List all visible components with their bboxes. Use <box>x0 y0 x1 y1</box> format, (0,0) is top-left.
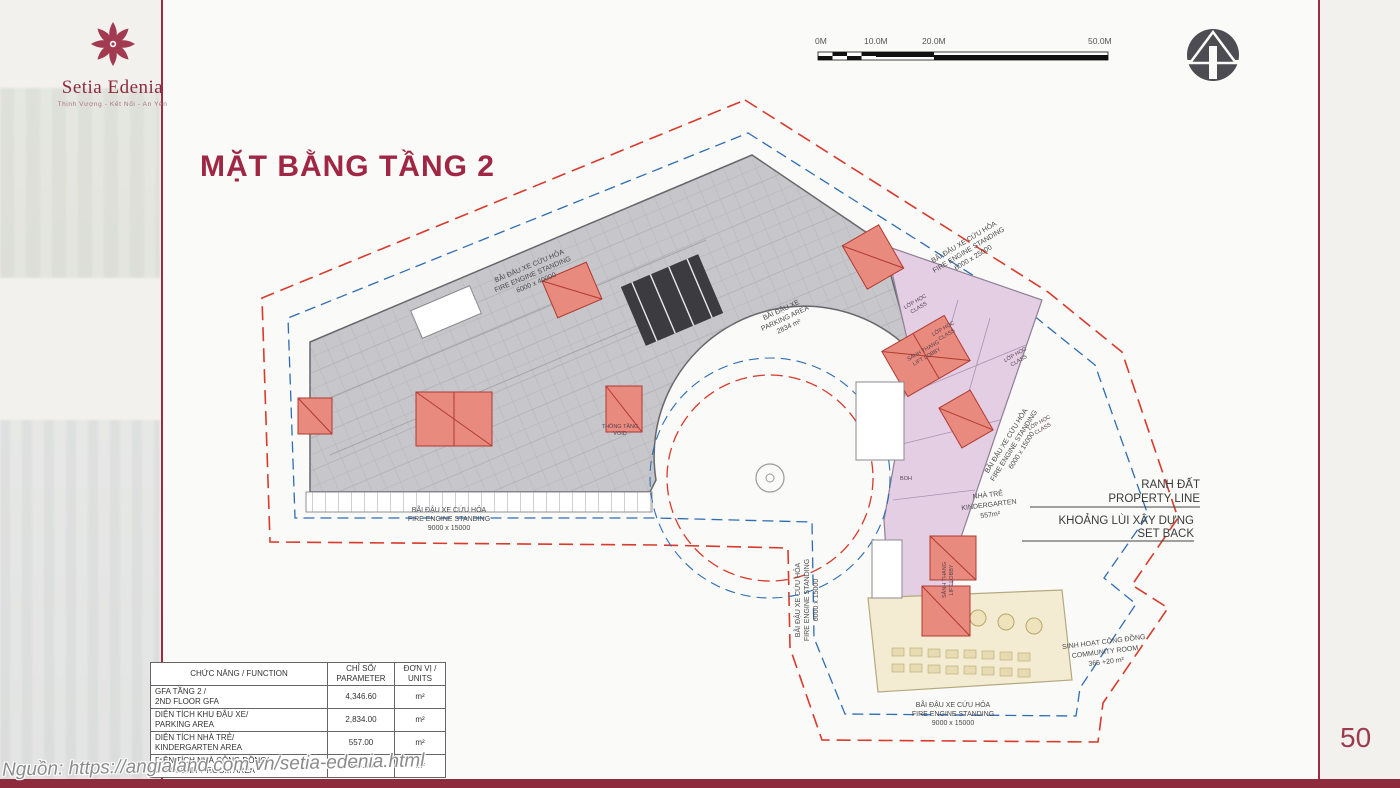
svg-text:FIRE ENGINE STANDING: FIRE ENGINE STANDING <box>408 516 490 523</box>
legend-setback-en: SET BACK <box>1137 528 1194 540</box>
legend-property-vi: RANH ĐẤT <box>1141 478 1200 491</box>
svg-text:LIFT LOBBY: LIFT LOBBY <box>949 564 955 595</box>
cell-unit: m² <box>395 709 446 732</box>
label-fire-standing-southeast: BÃI ĐẬU XE CỨU HỎA FIRE ENGINE STANDING … <box>912 700 994 727</box>
svg-text:9000 x 15000: 9000 x 15000 <box>932 720 975 727</box>
header-parameter: CHỈ SỐ/ PARAMETER <box>328 663 395 686</box>
scale-bar: 0M 10.0M 20.0M 50.0M <box>815 36 1112 60</box>
parking-wing <box>306 155 912 512</box>
svg-text:FIRE ENGINE STANDING: FIRE ENGINE STANDING <box>912 711 994 718</box>
cell-function: GFA TẦNG 2 / 2ND FLOOR GFA <box>151 686 328 709</box>
svg-text:6000 x 15000: 6000 x 15000 <box>813 579 820 622</box>
svg-text:557m²: 557m² <box>980 511 1001 520</box>
courtyard-driveway <box>650 358 890 598</box>
svg-text:VOID: VOID <box>613 431 626 437</box>
table-row: DIỆN TÍCH KHU ĐẬU XE/ PARKING AREA 2,834… <box>151 709 446 732</box>
svg-text:BÃI ĐẬU XE CỨU HỎA: BÃI ĐẬU XE CỨU HỎA <box>916 700 991 709</box>
cell-function: DIỆN TÍCH KHU ĐẬU XE/ PARKING AREA <box>151 709 328 732</box>
cell-value: 4,346.60 <box>328 686 395 709</box>
svg-text:9000 x 15000: 9000 x 15000 <box>428 525 471 532</box>
scale-bar-blocks <box>818 52 1108 60</box>
svg-text:365 +20 m²: 365 +20 m² <box>1088 657 1125 668</box>
cell-unit: m² <box>395 686 446 709</box>
header-units: ĐƠN VỊ / UNITS <box>395 663 446 686</box>
scale-tick-label: 0M <box>815 36 827 46</box>
svg-text:BÃI ĐẬU XE CỨU HỎA: BÃI ĐẬU XE CỨU HỎA <box>412 505 487 514</box>
header-function: CHỨC NĂNG / FUNCTION <box>151 663 328 686</box>
legend-property-en: PROPERTY LINE <box>1108 493 1200 505</box>
label-fire-standing-southwest: BÃI ĐẬU XE CỨU HỎA FIRE ENGINE STANDING … <box>408 505 490 532</box>
svg-text:FIRE ENGINE STANDING: FIRE ENGINE STANDING <box>804 559 811 641</box>
label-fire-standing-southmid: BÃI ĐẬU XE CỨU HỎA FIRE ENGINE STANDING … <box>793 559 820 641</box>
table-row: GFA TẦNG 2 / 2ND FLOOR GFA 4,346.60 m² <box>151 686 446 709</box>
scale-tick-label: 20.0M <box>922 36 946 46</box>
scale-tick-label: 10.0M <box>864 36 888 46</box>
legend-setback-vi: KHOẢNG LÙI XÂY DỰNG <box>1058 514 1194 527</box>
legend: RANH ĐẤT PROPERTY LINE KHOẢNG LÙI XÂY DỰ… <box>1022 478 1200 541</box>
cell-function: DIỆN TÍCH NHÀ TRẺ/ KINDERGARTEN AREA <box>151 732 328 755</box>
cell-value: 2,834.00 <box>328 709 395 732</box>
label-boh: BOH <box>900 476 912 482</box>
svg-text:BÃI ĐẬU XE CỨU HỎA: BÃI ĐẬU XE CỨU HỎA <box>793 562 802 637</box>
svg-text:THÔNG TẦNG: THÔNG TẦNG <box>602 423 639 430</box>
scale-tick-label: 50.0M <box>1088 36 1112 46</box>
svg-text:SẢNH THANG: SẢNH THANG <box>941 562 948 598</box>
north-arrow-icon <box>1187 29 1239 81</box>
label-community-room: SINH HOẠT CỘNG ĐỒNG COMMUNITY ROOM 365 +… <box>1061 631 1148 671</box>
table-header-row: CHỨC NĂNG / FUNCTION CHỈ SỐ/ PARAMETER Đ… <box>151 663 446 686</box>
